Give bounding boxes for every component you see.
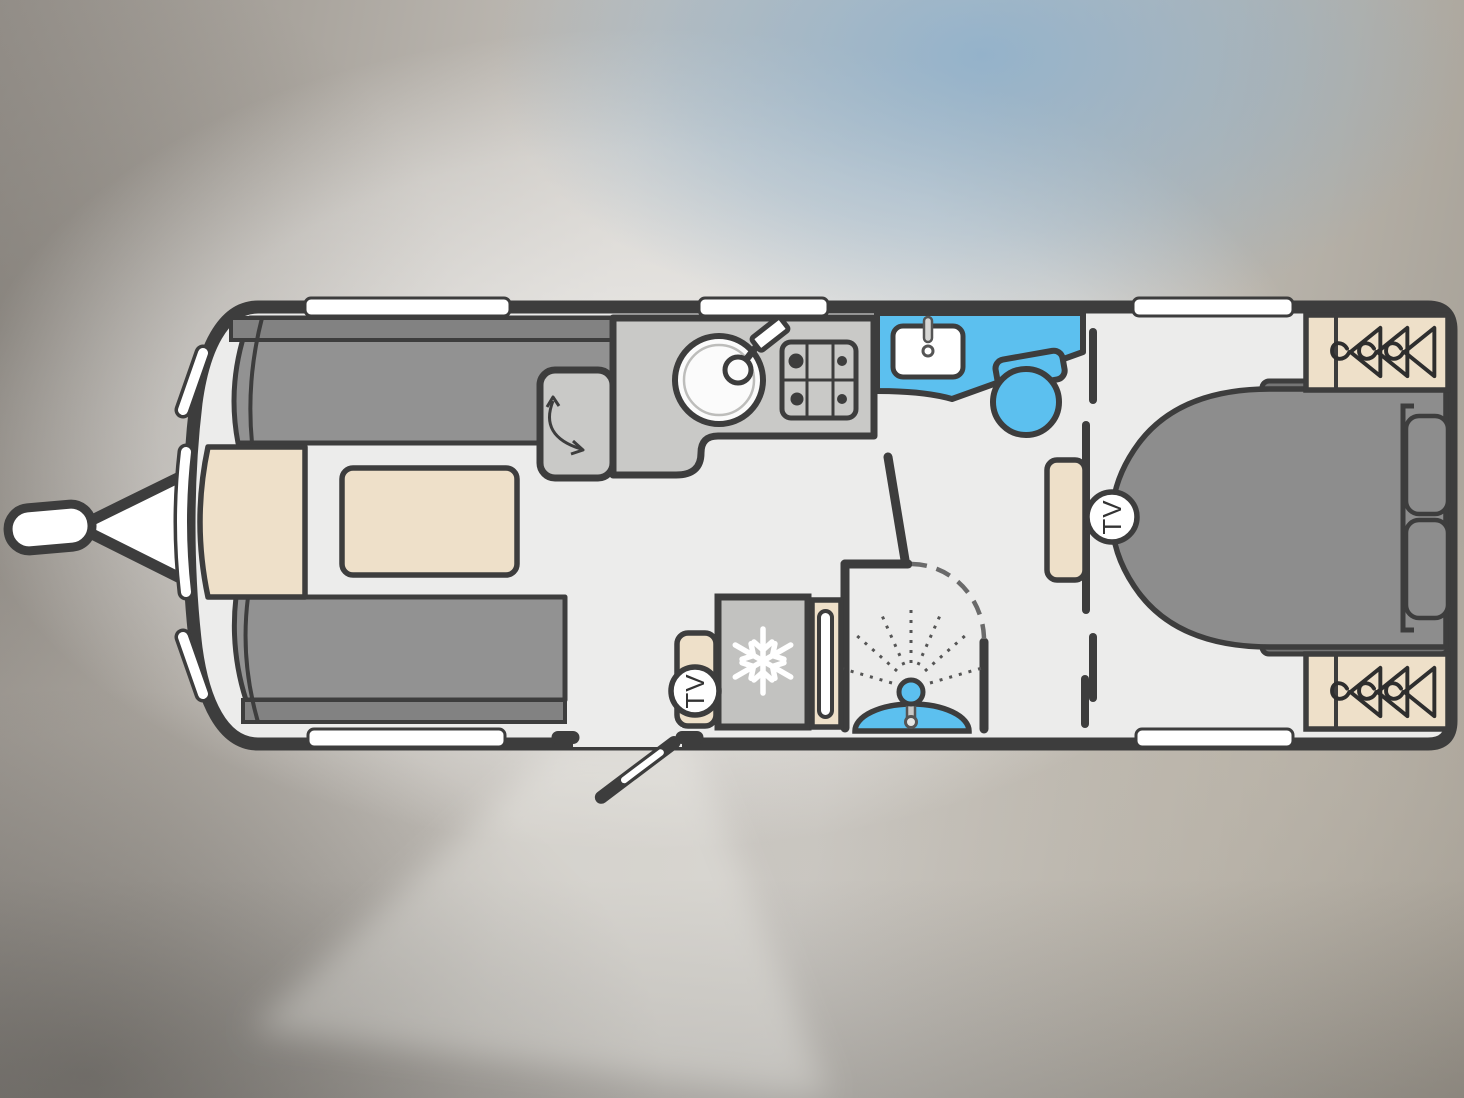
pedestal-table [342, 468, 517, 575]
window-bottom-lounge [308, 729, 505, 747]
lounge-sofa-bottom [234, 597, 565, 722]
bedside-locker [1047, 460, 1085, 580]
toilet [993, 349, 1066, 435]
four-burner-hob [782, 342, 856, 418]
tall-slot-cupboard [812, 600, 841, 727]
cabinet-with-door-swing [540, 370, 613, 478]
caravan-floorplan-scene: TV TV [0, 0, 1464, 1098]
tv-badge-bedroom-label: TV [1097, 499, 1127, 534]
island-bed-with-pillows [1112, 381, 1448, 654]
basin-tap-icon [924, 317, 932, 342]
bed-mattress [1112, 389, 1446, 647]
fridge-freezer [718, 597, 808, 727]
window-top-kitchen [699, 298, 828, 316]
tv-badge-lounge-label: TV [680, 673, 710, 708]
hitch-a-frame [6, 468, 198, 587]
front-chest [200, 447, 305, 597]
floorplan-drawing: TV TV [0, 0, 1464, 1098]
window-bottom-bedroom [1136, 729, 1293, 747]
wardrobe-rear-top [1306, 315, 1448, 390]
wardrobe-rear-bottom [1306, 654, 1448, 729]
pillow [1406, 520, 1448, 618]
tv-badge-bedroom: TV [1087, 492, 1137, 542]
jockey-wheel-icon [6, 502, 93, 552]
shower-head-icon [899, 680, 923, 704]
window-top-lounge [305, 298, 510, 316]
door-light-spill [250, 744, 830, 1098]
pillow [1406, 416, 1448, 514]
tv-badge-lounge: TV [671, 667, 719, 715]
window-top-bedroom [1133, 298, 1293, 316]
